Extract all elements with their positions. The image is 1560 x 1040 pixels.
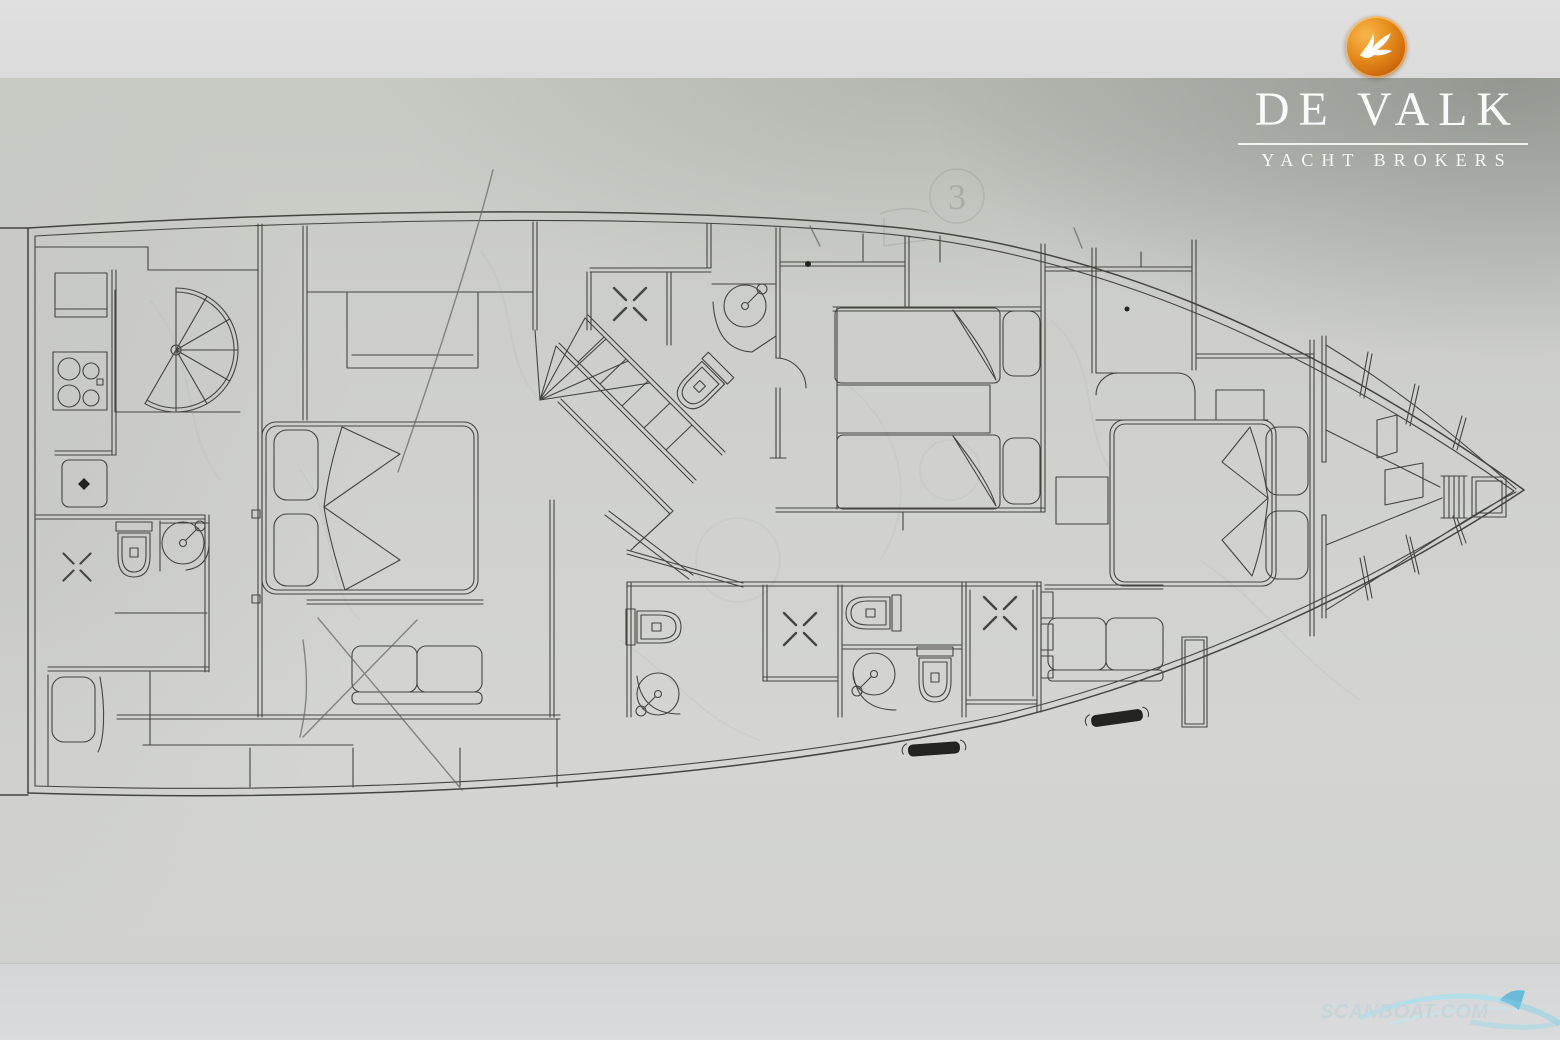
guest-bathrooms <box>626 585 1053 757</box>
spiral-staircase <box>115 288 240 412</box>
double-bed <box>1110 420 1308 586</box>
pillow <box>1003 311 1040 376</box>
pillow <box>52 677 95 742</box>
shower-cross-icon <box>784 613 816 645</box>
screenshot-root: 3 <box>0 0 1560 1040</box>
pillow <box>274 430 318 500</box>
aft-bathroom <box>63 521 209 613</box>
galley-cabinet <box>55 273 107 317</box>
brand-name: DE VALK <box>1235 82 1531 137</box>
single-bed <box>835 308 1040 383</box>
scanboat-watermark: SCANBOAT.COM <box>1320 1001 1480 1024</box>
midship-bathroom <box>614 261 1130 417</box>
door-arc <box>776 358 806 388</box>
brand-tagline: YACHT BROKERS <box>1235 150 1531 171</box>
sink-icon <box>62 460 107 507</box>
hull-outline <box>0 212 1524 796</box>
bench <box>1084 707 1149 729</box>
twin-cabin <box>776 234 1040 509</box>
galley <box>35 247 258 507</box>
vanity-counter <box>1096 373 1268 420</box>
toilet-icon <box>116 522 152 577</box>
shower-stall <box>966 590 1037 704</box>
brand-logo: DE VALK YACHT BROKERS <box>1235 0 1531 180</box>
brand-divider <box>1238 143 1528 145</box>
ladder-icon <box>1441 476 1467 518</box>
pillow <box>1003 438 1040 504</box>
nightstand-shelf <box>837 385 990 433</box>
bench <box>902 740 966 757</box>
falcon-icon <box>1345 16 1407 78</box>
pillow <box>274 514 318 586</box>
toilet-icon <box>669 352 733 416</box>
sofa <box>352 646 482 704</box>
toilet-icon <box>626 609 681 645</box>
double-bed <box>262 422 478 594</box>
toilet-icon <box>917 647 953 702</box>
shower-cross-icon <box>614 288 646 320</box>
nightstand <box>1056 477 1108 524</box>
anchor-locker <box>1472 477 1506 517</box>
owner-cabin <box>1048 252 1308 728</box>
aft-berth <box>48 672 557 787</box>
shower-cross-icon <box>63 553 90 580</box>
shower-stall <box>763 585 838 681</box>
round-shower-icon <box>160 521 209 571</box>
shower-cross-icon <box>984 597 1016 629</box>
bow-compartment <box>1326 345 1516 610</box>
door-arc <box>1096 373 1118 395</box>
toilet-icon <box>846 595 901 631</box>
stove-icon <box>53 352 107 410</box>
round-shower-icon <box>852 653 896 710</box>
frame-number-text: 3 <box>948 177 966 217</box>
round-shower-icon <box>636 673 680 716</box>
cabinet <box>347 292 478 368</box>
round-shower-icon <box>712 284 776 352</box>
